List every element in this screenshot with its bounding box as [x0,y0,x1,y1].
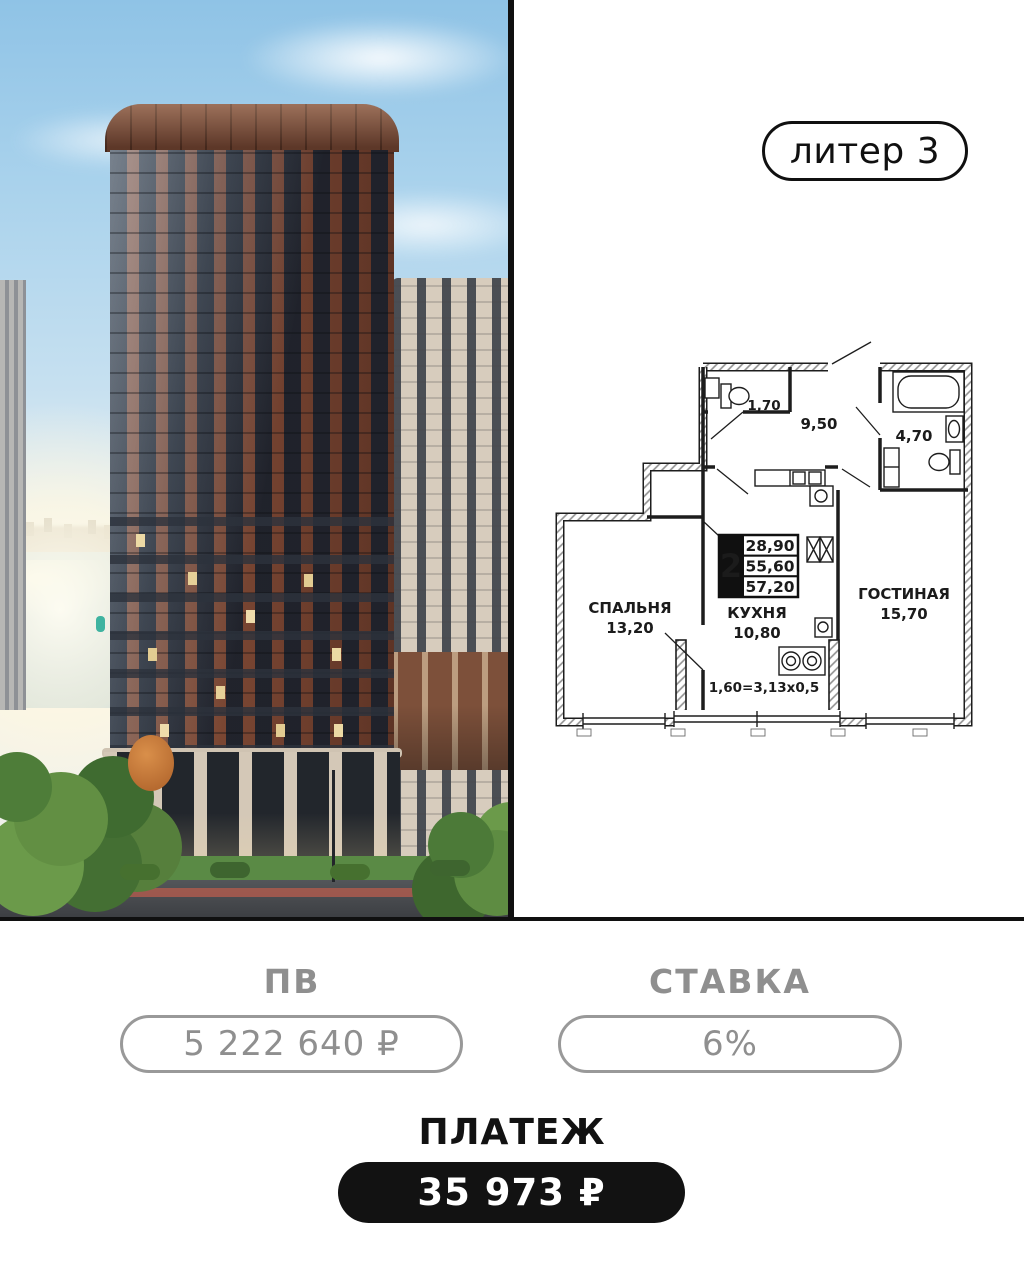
windows [577,710,954,736]
rate-value: 6% [558,1015,902,1073]
area-info-box: 2 28,90 55,60 57,20 [703,521,798,597]
living-label: ГОСТИНАЯ [858,585,950,603]
wc-area: 1,70 [747,398,780,414]
balcony-note: 1,60=3,13x0,5 [709,680,820,696]
buoy [96,616,105,632]
bike-lane [0,888,508,897]
horizontal-divider [0,917,1024,921]
liter-badge: литер 3 [762,121,968,181]
road [0,880,508,917]
kitchen-label: КУХНЯ [727,604,787,622]
bath-area: 4,70 [895,427,932,445]
trees-right [428,812,494,878]
listing-card: литер 3 [0,0,1024,1280]
down-payment-label: ПВ [122,962,462,1001]
tower-balcony-bands [110,504,394,754]
payment-value: 35 973 ₽ [338,1162,685,1223]
background-building-right [392,278,508,863]
bath-toilet-tank-icon [950,450,960,474]
lit-windows [136,534,145,547]
down-payment-value: 5 222 640 ₽ [120,1015,463,1073]
tower-crown [105,104,399,152]
background-building-left [0,280,26,710]
bath-toilet-icon [929,454,949,471]
wc-sink-icon [705,378,719,398]
bedroom-label: СПАЛЬНЯ [588,599,671,617]
building-photo [0,0,508,917]
wc-toilet-icon [729,388,749,405]
background-building-annex [392,652,508,770]
area-value: 57,20 [745,578,794,596]
vertical-divider [508,0,514,921]
payment-label: ПЛАТЕЖ [342,1112,682,1153]
wc-fixtures [705,378,749,408]
cloud [240,18,508,98]
floor-plan: 2 28,90 55,60 57,20 1,70 9,50 4,70 СПАЛЬ… [553,340,993,740]
rate-label: СТАВКА [560,962,900,1001]
hall-area: 9,50 [800,415,837,433]
area-value: 55,60 [745,558,794,576]
room-count: 2 [720,547,742,585]
bedroom-area: 13,20 [606,619,653,637]
bushes [210,862,250,878]
area-value: 28,90 [745,537,794,555]
street-lamp [332,770,335,882]
kitchen-area: 10,80 [733,624,780,642]
orange-tree [128,735,174,791]
living-area: 15,70 [880,605,927,623]
